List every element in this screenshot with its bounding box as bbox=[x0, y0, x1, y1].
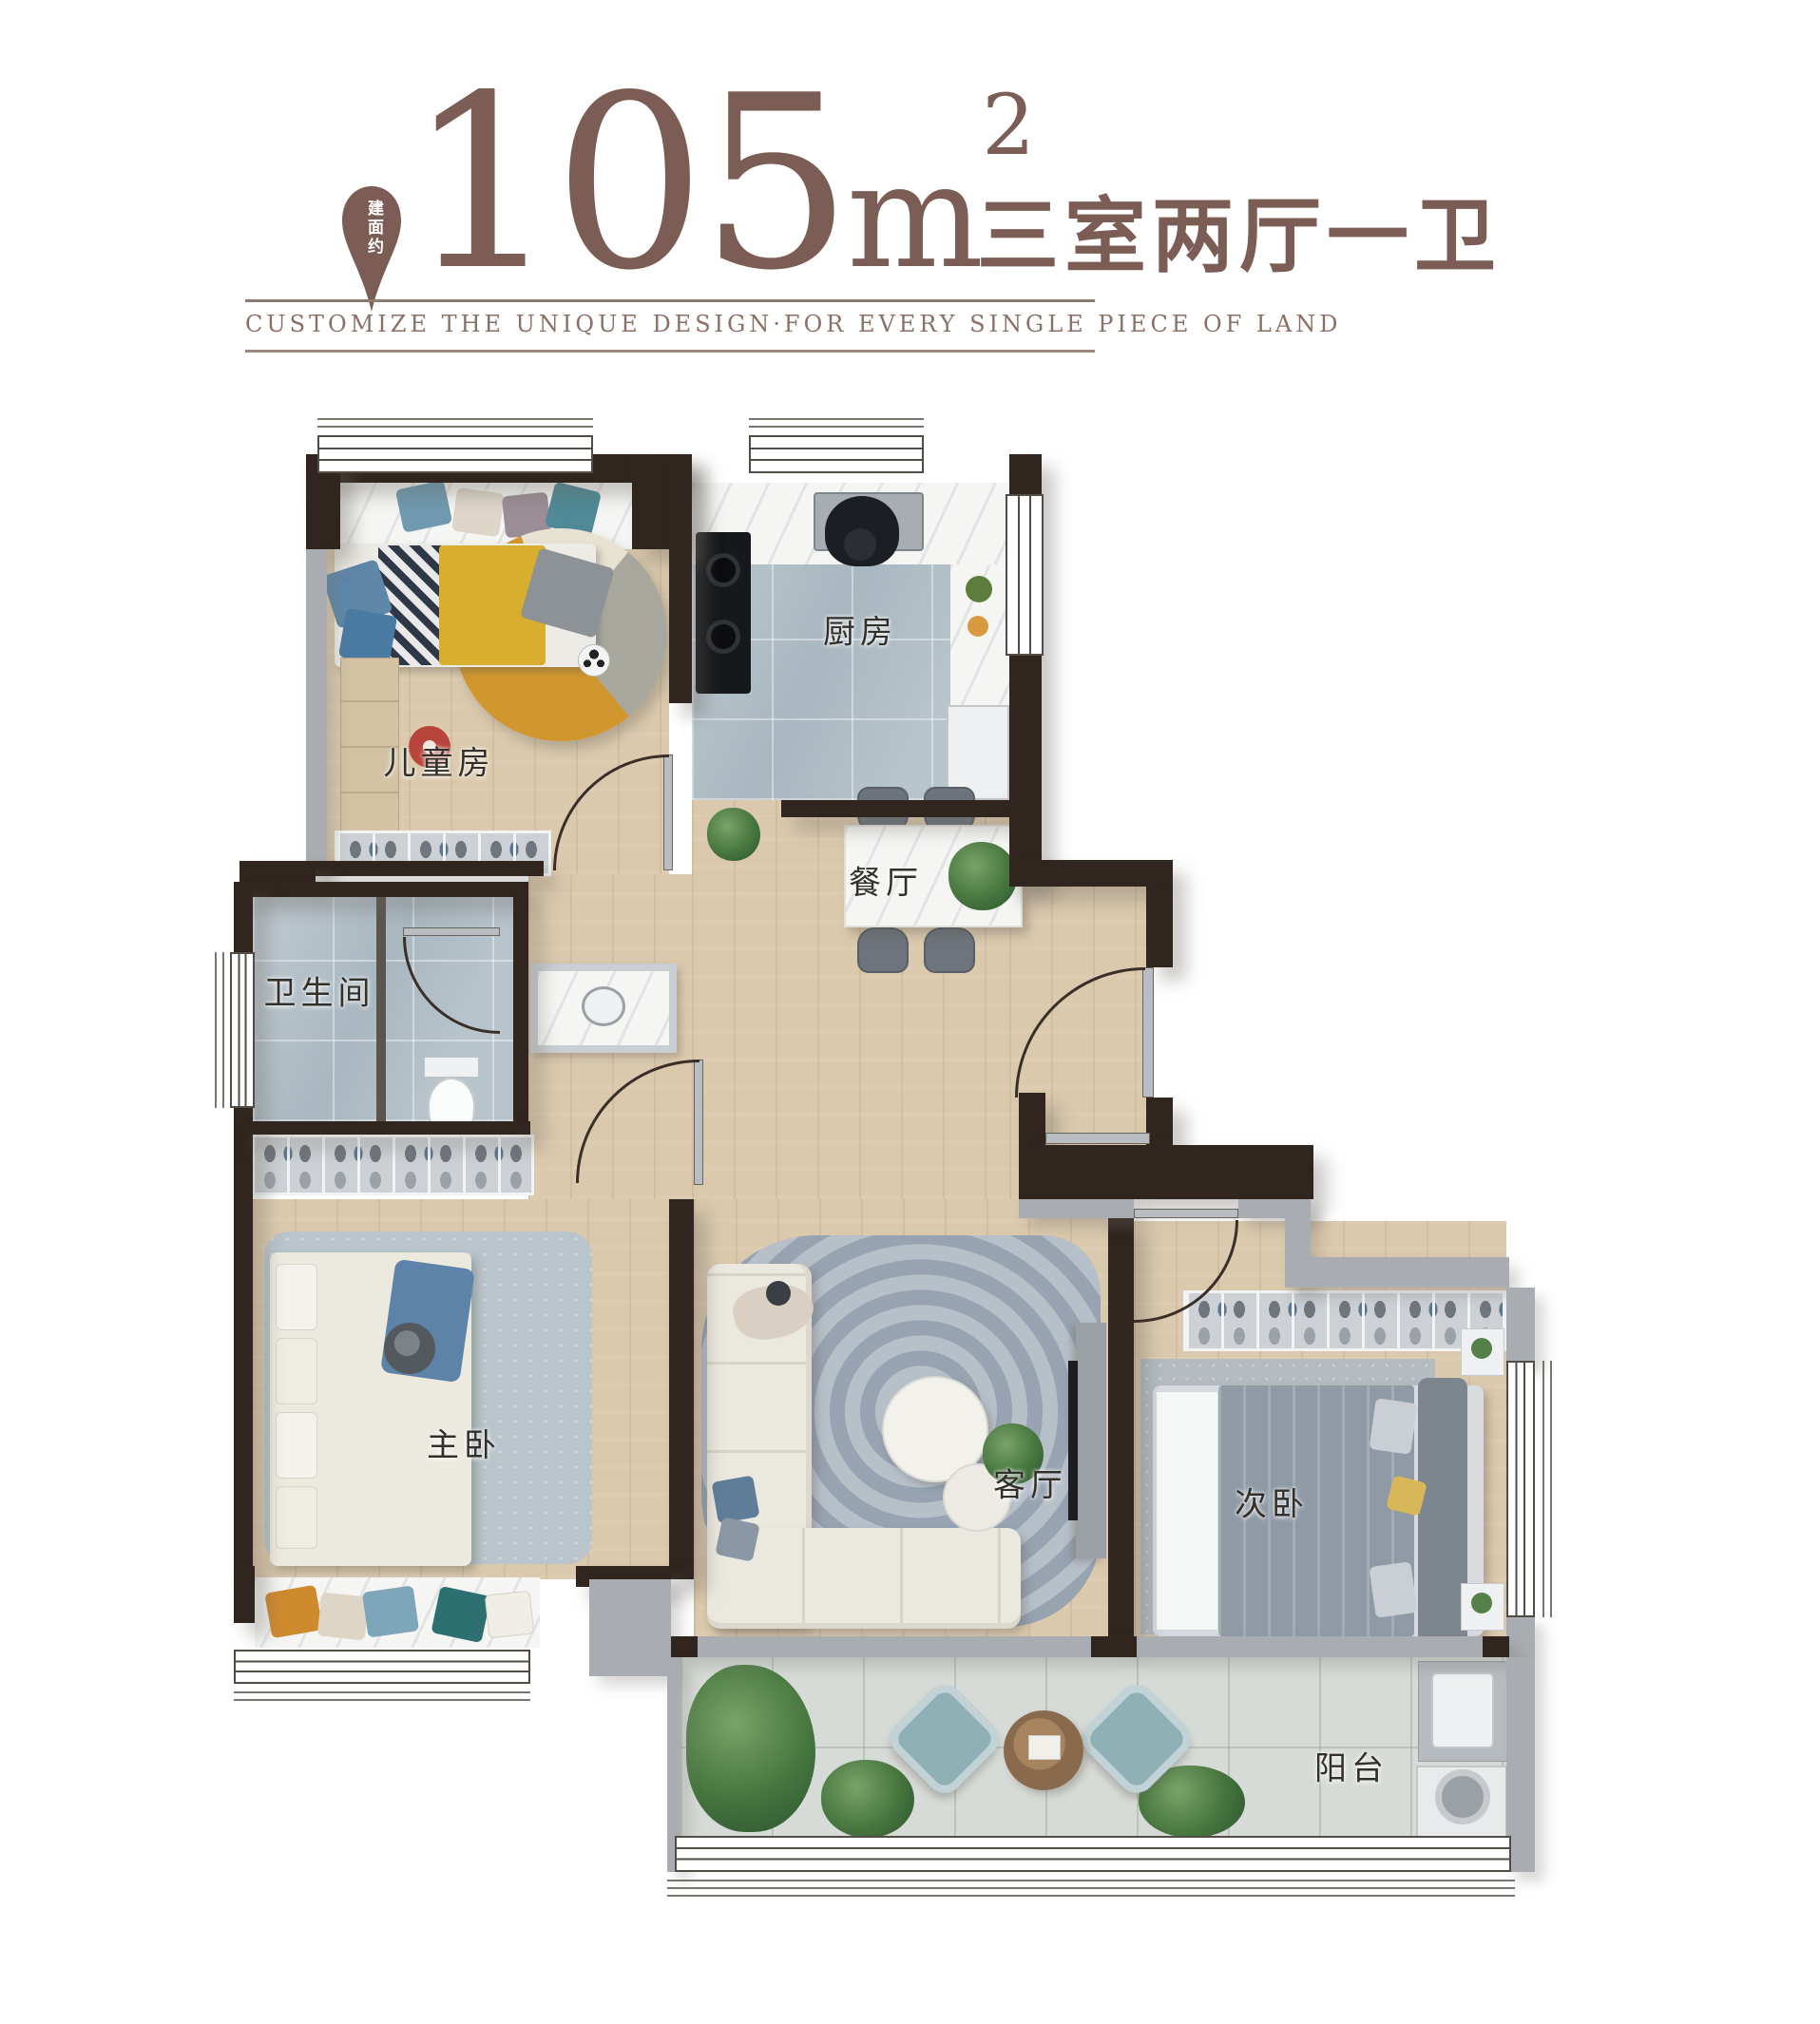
divider-top bbox=[245, 299, 1095, 302]
balcony-plant bbox=[821, 1760, 914, 1838]
pillow bbox=[431, 1586, 490, 1643]
area-exponent: 2 bbox=[982, 76, 1033, 174]
wall bbox=[669, 1199, 694, 1579]
person-head bbox=[766, 1281, 791, 1306]
toilet-tank bbox=[424, 1057, 479, 1078]
window-frame-line bbox=[317, 418, 593, 420]
pillow bbox=[276, 1338, 317, 1404]
balcony-table-book bbox=[1028, 1735, 1061, 1760]
window bbox=[749, 435, 924, 473]
wall bbox=[669, 454, 692, 703]
room-label-kitchen: 厨房 bbox=[823, 606, 897, 653]
fridge bbox=[947, 705, 1009, 800]
stove-burner bbox=[706, 553, 740, 587]
wall bbox=[1108, 1218, 1134, 1636]
door-leaf bbox=[403, 927, 500, 936]
sofa-pillow bbox=[712, 1476, 760, 1524]
wall-light bbox=[306, 549, 327, 874]
wall-light bbox=[589, 1579, 671, 1676]
pillow bbox=[276, 1264, 317, 1330]
window-frame-line bbox=[234, 1699, 530, 1701]
nightstand-plant bbox=[1471, 1338, 1492, 1359]
sofa-pillow bbox=[715, 1517, 759, 1561]
window-frame-line bbox=[234, 1691, 530, 1693]
window-frame-line bbox=[749, 426, 924, 428]
wall bbox=[1009, 860, 1173, 887]
laundry-sink bbox=[1431, 1672, 1494, 1748]
window bbox=[317, 435, 593, 473]
wall bbox=[1019, 1093, 1045, 1145]
room-label-secondary: 次卧 bbox=[1235, 1479, 1309, 1525]
window-frame-line bbox=[1550, 1361, 1552, 1617]
nightstand-plant bbox=[1471, 1593, 1492, 1613]
wall bbox=[239, 882, 517, 897]
area-title: 105m2 bbox=[407, 65, 1033, 304]
wall-sliding-door bbox=[671, 1636, 1509, 1657]
wall bbox=[1146, 1098, 1173, 1145]
room-summary: 三室两厅一卫 bbox=[977, 169, 1502, 288]
master-wardrobe bbox=[249, 1135, 534, 1195]
wall-light bbox=[1019, 1199, 1134, 1218]
window-frame-line bbox=[215, 952, 217, 1108]
vegetable-bowl bbox=[966, 576, 992, 602]
area-badge-text: 建面约 bbox=[359, 200, 386, 257]
window bbox=[1006, 494, 1044, 656]
secondary-wardrobe bbox=[1183, 1290, 1506, 1351]
room-label-balcony: 阳台 bbox=[1314, 1743, 1389, 1789]
pillow bbox=[362, 1585, 419, 1637]
window-frame-line bbox=[1542, 1361, 1544, 1617]
corridor-plant bbox=[707, 808, 760, 861]
wall bbox=[1091, 1636, 1137, 1657]
pillow bbox=[1369, 1398, 1417, 1455]
dining-chair bbox=[924, 927, 975, 973]
washbasin bbox=[582, 986, 625, 1026]
soccer-ball bbox=[578, 644, 610, 677]
dining-chair bbox=[857, 927, 909, 973]
pillow bbox=[264, 1585, 323, 1639]
person-head bbox=[844, 528, 876, 561]
window-frame-line bbox=[222, 952, 224, 1108]
window-balcony bbox=[675, 1836, 1511, 1872]
pillow bbox=[276, 1486, 317, 1549]
wall bbox=[1483, 1636, 1509, 1657]
window-frame-line bbox=[667, 1880, 1515, 1881]
wall bbox=[781, 800, 1009, 817]
wall bbox=[671, 1636, 698, 1657]
window-frame-line bbox=[317, 426, 593, 428]
wall-light bbox=[1285, 1257, 1509, 1288]
window-frame-line bbox=[667, 1895, 1515, 1897]
room-label-children: 儿童房 bbox=[384, 737, 495, 784]
room-label-master: 主卧 bbox=[427, 1420, 501, 1466]
window bbox=[230, 952, 255, 1108]
stove-burner bbox=[706, 620, 740, 654]
window-frame-line bbox=[667, 1887, 1515, 1889]
dining-table-plant bbox=[948, 842, 1017, 910]
wall-light bbox=[1506, 1615, 1535, 1657]
pillow bbox=[317, 1593, 370, 1641]
door-leaf bbox=[1134, 1209, 1238, 1218]
tv-screen bbox=[1068, 1361, 1078, 1520]
window-frame-line bbox=[749, 418, 924, 420]
bathroom-partition-wall bbox=[376, 897, 386, 1121]
secondary-mattress-edge bbox=[1156, 1391, 1218, 1631]
wall bbox=[513, 882, 528, 1121]
room-label-dining: 餐厅 bbox=[849, 857, 923, 904]
master-side-table bbox=[384, 1323, 435, 1374]
fruit-plate bbox=[967, 616, 988, 637]
wall bbox=[1146, 887, 1173, 967]
area-number: 105 bbox=[407, 45, 847, 323]
wall bbox=[234, 1566, 255, 1623]
divider-bottom bbox=[245, 350, 1095, 353]
pillow bbox=[1369, 1561, 1417, 1618]
entry-door-sill bbox=[1045, 1133, 1150, 1144]
wall bbox=[239, 1121, 530, 1135]
pillow bbox=[276, 1412, 317, 1479]
wall-entry bbox=[1019, 1145, 1313, 1199]
area-unit: m bbox=[847, 132, 982, 300]
tagline: CUSTOMIZE THE UNIQUE DESIGN·FOR EVERY SI… bbox=[245, 311, 1095, 337]
window-bay bbox=[234, 1650, 530, 1684]
room-label-bathroom: 卫生间 bbox=[264, 967, 375, 1014]
wall bbox=[306, 861, 544, 876]
pillow bbox=[451, 487, 505, 538]
window bbox=[1506, 1361, 1535, 1617]
tv-console bbox=[1076, 1323, 1106, 1558]
pillow bbox=[485, 1591, 535, 1639]
wall bbox=[239, 861, 316, 884]
room-label-living: 客厅 bbox=[993, 1460, 1067, 1506]
washing-machine-drum bbox=[1435, 1769, 1490, 1824]
floorplan-poster: 建面约 105m2 三室两厅一卫 CUSTOMIZE THE UNIQUE DE… bbox=[0, 0, 1820, 2024]
wall-light bbox=[1506, 1288, 1535, 1364]
